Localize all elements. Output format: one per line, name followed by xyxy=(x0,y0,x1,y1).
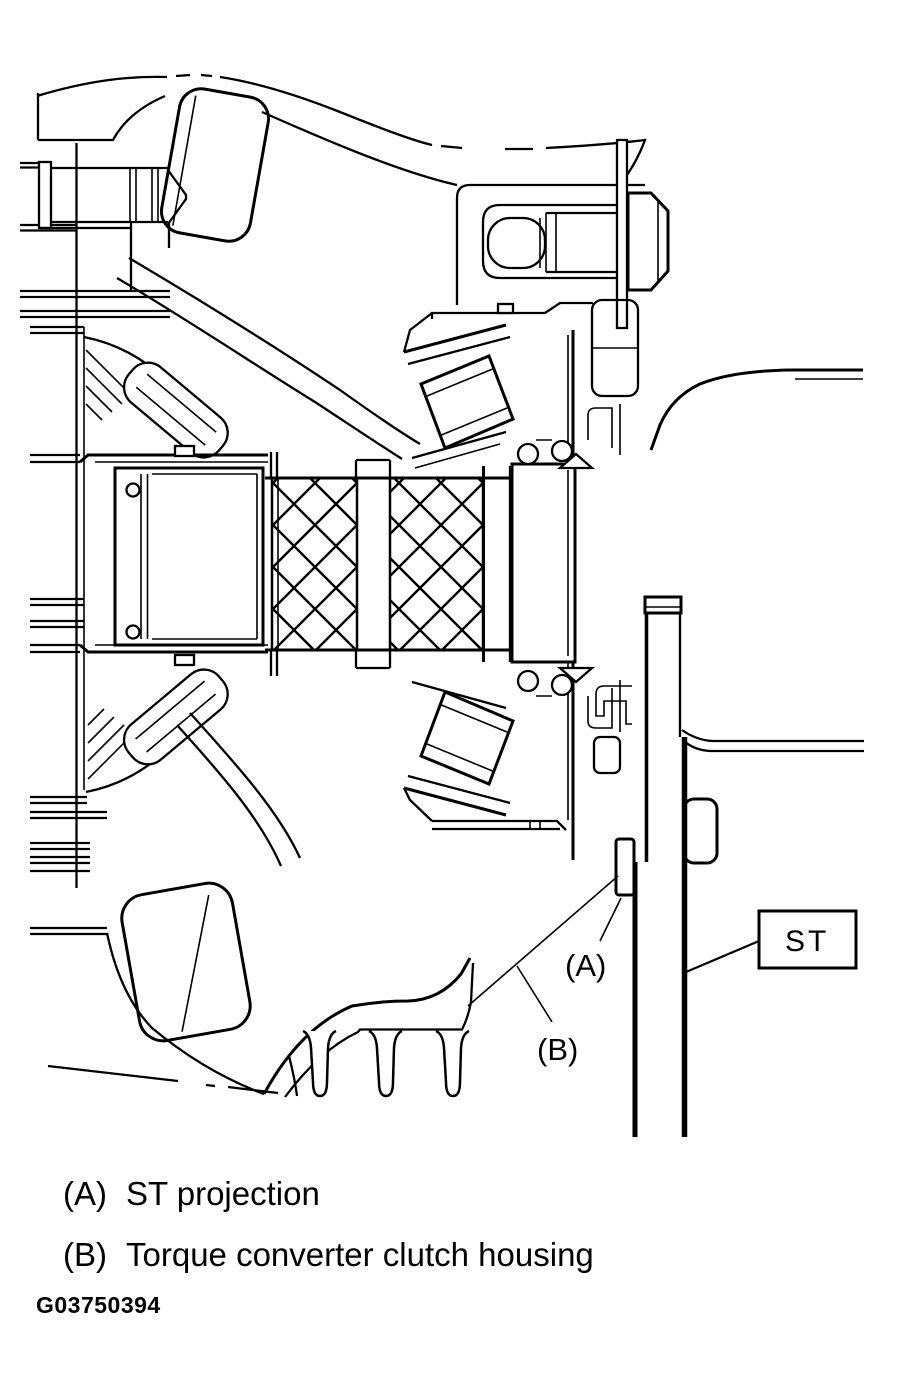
pinion-gear-lower xyxy=(86,661,236,792)
break-line xyxy=(48,1066,278,1093)
stamped-bracket-lower xyxy=(594,686,632,773)
st-box-label: ST xyxy=(785,925,829,958)
torque-converter-clutch-housing xyxy=(48,958,473,1097)
leader-a xyxy=(600,898,621,941)
st-tool xyxy=(635,597,864,1137)
label-b: (B) xyxy=(537,1032,578,1067)
legend-row-b: (B) Torque converter clutch housing xyxy=(63,1237,594,1273)
seal-upper xyxy=(518,404,620,468)
label-a: (A) xyxy=(565,948,606,983)
leader-b xyxy=(517,966,552,1022)
housing-top-outline xyxy=(37,75,645,187)
figure-page: (A) (B) ST (A) ST projection (B) Torque … xyxy=(0,0,901,1395)
leader-st xyxy=(686,941,759,972)
legend: (A) ST projection (B) Torque converter c… xyxy=(63,1176,594,1298)
converter-housing-flange xyxy=(651,370,863,450)
legend-key-b: (B) xyxy=(63,1237,126,1273)
legend-row-a: (A) ST projection xyxy=(63,1176,594,1212)
side-gear-and-lattice-band xyxy=(80,446,575,676)
differential-case-lower-lobe xyxy=(118,879,254,1044)
case-sweep-lower xyxy=(177,713,300,866)
figure-code: G03750394 xyxy=(36,1292,161,1319)
leader-lines xyxy=(468,876,759,1022)
seal-lower xyxy=(518,668,620,732)
bolt-hex-head xyxy=(628,193,668,290)
st-projection-clip xyxy=(616,839,634,895)
differential-case-upper-lobe xyxy=(158,85,272,244)
leader-long-diagonal xyxy=(468,876,618,1006)
legend-label-b: Torque converter clutch housing xyxy=(126,1237,594,1273)
bearing-retainer-lower xyxy=(404,682,566,830)
st-box: ST xyxy=(759,911,856,968)
legend-label-a: ST projection xyxy=(126,1176,320,1212)
legend-key-a: (A) xyxy=(63,1176,126,1212)
tool-boss xyxy=(684,799,717,863)
pinion-gear-upper xyxy=(84,337,236,466)
